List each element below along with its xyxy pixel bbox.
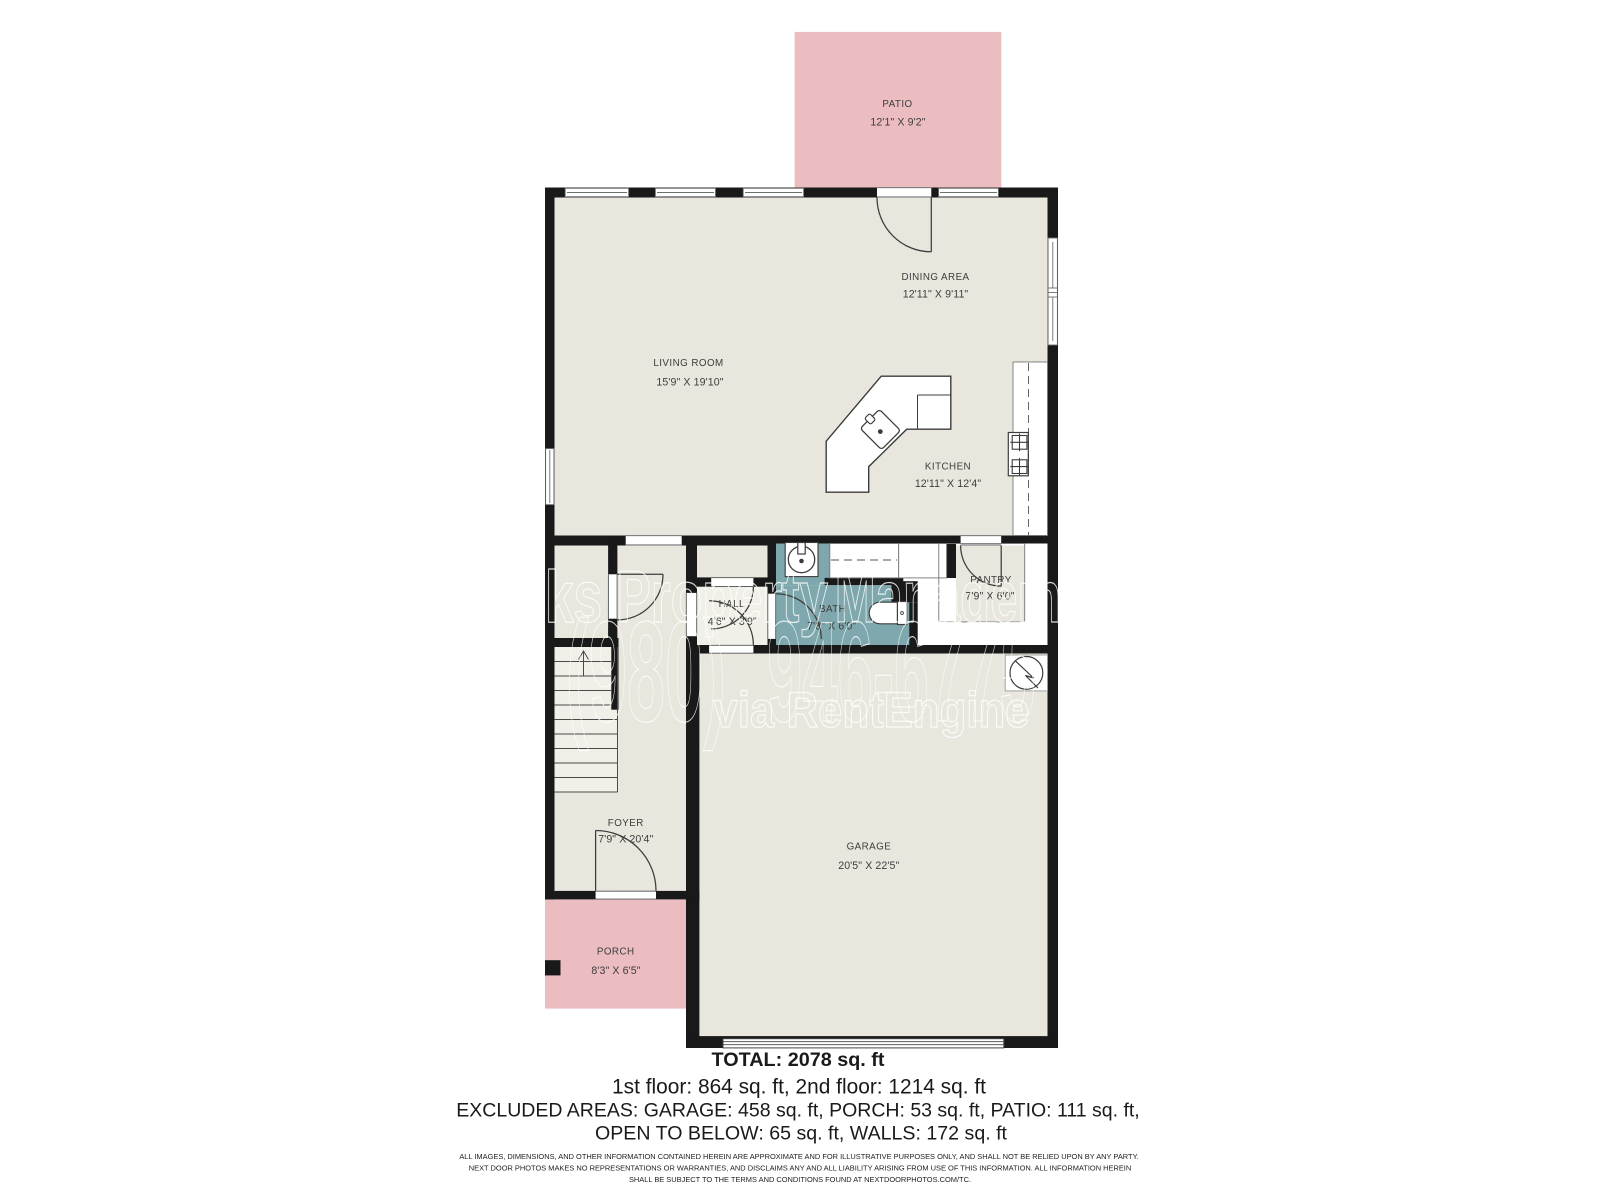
svg-text:8'3" X 6'5": 8'3" X 6'5" xyxy=(591,965,640,977)
svg-text:NEXT DOOR PHOTOS MAKES NO REPR: NEXT DOOR PHOTOS MAKES NO REPRESENTATION… xyxy=(469,1164,1131,1173)
svg-text:OPEN TO BELOW: 65 sq. ft, WALL: OPEN TO BELOW: 65 sq. ft, WALLS: 172 sq.… xyxy=(595,1123,1008,1145)
svg-text:FOYER: FOYER xyxy=(608,818,644,829)
svg-text:DINING AREA: DINING AREA xyxy=(901,272,969,283)
svg-text:LIVING ROOM: LIVING ROOM xyxy=(653,358,723,369)
svg-text:15'9" X 19'10": 15'9" X 19'10" xyxy=(656,377,723,389)
svg-text:KITCHEN: KITCHEN xyxy=(925,462,971,473)
svg-text:PATIO: PATIO xyxy=(882,99,912,110)
svg-text:TOTAL: 2078 sq. ft: TOTAL: 2078 sq. ft xyxy=(712,1049,885,1071)
svg-text:12'1" X 9'2": 12'1" X 9'2" xyxy=(870,117,925,129)
svg-text:via RentEngine: via RentEngine xyxy=(714,682,1030,738)
svg-text:1st floor: 864 sq. ft, 2nd flo: 1st floor: 864 sq. ft, 2nd floor: 1214 s… xyxy=(612,1076,986,1099)
svg-text:12'11" X 12'4": 12'11" X 12'4" xyxy=(915,478,982,490)
svg-text:(980): (980) xyxy=(566,593,726,752)
svg-text:ALL IMAGES, DIMENSIONS, AND OT: ALL IMAGES, DIMENSIONS, AND OTHER INFORM… xyxy=(459,1152,1138,1161)
svg-text:7'9" X 20'4": 7'9" X 20'4" xyxy=(598,833,653,845)
svg-text:12'11" X 9'11": 12'11" X 9'11" xyxy=(903,289,969,301)
svg-text:EXCLUDED AREAS: GARAGE: 458 sq: EXCLUDED AREAS: GARAGE: 458 sq. ft, PORC… xyxy=(456,1100,1139,1122)
svg-text:20'5" X 22'5": 20'5" X 22'5" xyxy=(838,860,899,872)
svg-text:GARAGE: GARAGE xyxy=(847,842,892,853)
svg-text:PORCH: PORCH xyxy=(597,947,635,958)
svg-text:SHALL BE SUBJECT TO THE TERMS: SHALL BE SUBJECT TO THE TERMS AND CONDIT… xyxy=(629,1175,971,1184)
